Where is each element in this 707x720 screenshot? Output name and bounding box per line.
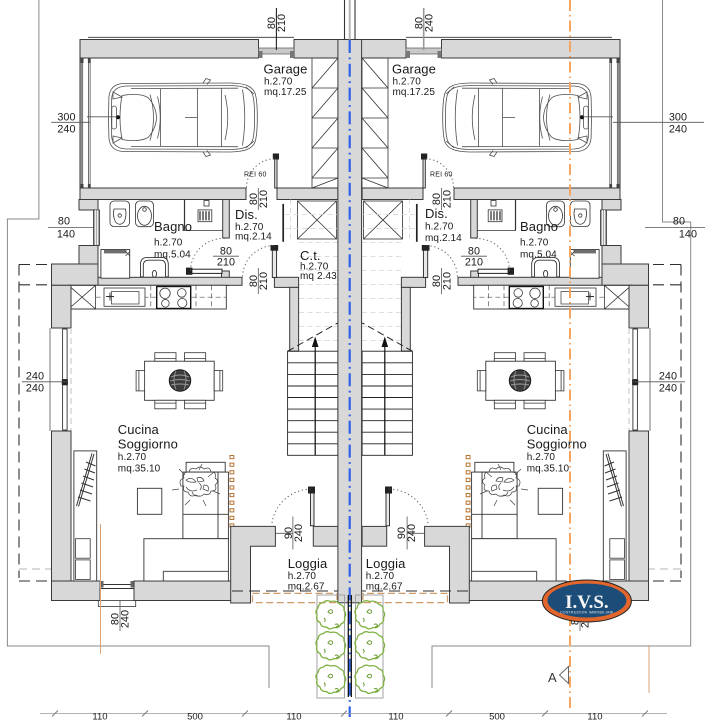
svg-text:240: 240 [659,383,677,395]
svg-text:Loggia: Loggia [288,556,328,571]
svg-text:h.2.70: h.2.70 [425,222,454,233]
svg-text:Cucina: Cucina [118,422,160,437]
svg-text:mq.17.25: mq.17.25 [393,87,436,98]
svg-text:240: 240 [659,371,677,383]
svg-text:h.2.70: h.2.70 [264,77,293,88]
svg-text:h.2.70: h.2.70 [366,571,395,582]
svg-text:A: A [548,670,557,685]
svg-text:210: 210 [217,257,235,269]
svg-text:mq.17.25: mq.17.25 [264,87,307,98]
svg-text:80: 80 [673,216,685,228]
svg-text:mq.2.67: mq.2.67 [288,582,325,593]
svg-text:210: 210 [258,272,270,290]
svg-text:240: 240 [26,371,44,383]
svg-text:240: 240 [57,124,75,136]
svg-text:210: 210 [465,257,483,269]
svg-text:mq.35.10: mq.35.10 [527,464,570,475]
svg-text:h.2.70: h.2.70 [288,571,317,582]
svg-text:500: 500 [489,712,505,720]
svg-text:110: 110 [388,712,403,720]
svg-text:h.2.70: h.2.70 [520,238,549,249]
svg-text:210: 210 [258,190,270,208]
svg-text:210: 210 [441,272,453,290]
svg-text:h.2.70: h.2.70 [393,77,422,88]
svg-text:Soggiorno: Soggiorno [527,437,587,452]
svg-text:h.2.70: h.2.70 [527,452,556,463]
svg-text:mq 2.43: mq 2.43 [300,271,337,282]
svg-text:300: 300 [57,112,75,124]
svg-text:Bagno: Bagno [520,219,558,234]
svg-text:240: 240 [406,524,418,542]
svg-text:Loggia: Loggia [366,556,406,571]
svg-text:mq.5.04: mq.5.04 [520,250,557,261]
svg-text:Cucina: Cucina [527,422,569,437]
svg-text:Garage: Garage [392,62,436,77]
svg-text:mq.35.10: mq.35.10 [118,464,161,475]
svg-text:240: 240 [26,383,44,395]
svg-text:mq.2.14: mq.2.14 [235,232,272,243]
svg-text:Garage: Garage [264,62,308,77]
svg-text:500: 500 [187,712,203,720]
svg-text:Dis.: Dis. [235,207,258,222]
svg-text:140: 140 [679,229,697,241]
svg-text:REI 60: REI 60 [244,172,267,179]
svg-text:110: 110 [92,712,107,720]
svg-text:COSTRUZIONI IMMOBILIARI: COSTRUZIONI IMMOBILIARI [560,611,614,615]
svg-text:h.2.70: h.2.70 [118,452,147,463]
svg-text:210: 210 [276,14,288,32]
svg-text:80: 80 [58,216,70,228]
svg-text:mq.2.14: mq.2.14 [425,233,462,244]
svg-text:mq.5.04: mq.5.04 [154,250,191,261]
svg-text:240: 240 [120,610,132,628]
svg-text:240: 240 [669,124,687,136]
svg-text:240: 240 [424,14,436,32]
svg-text:Soggiorno: Soggiorno [118,437,178,452]
svg-text:REI 60: REI 60 [430,172,453,179]
svg-text:h.2.70: h.2.70 [154,238,183,249]
svg-text:210: 210 [441,190,453,208]
svg-text:300: 300 [669,112,687,124]
svg-text:110: 110 [587,712,602,720]
svg-text:Bagno: Bagno [154,219,192,234]
svg-text:240: 240 [293,524,305,542]
svg-text:mq.2.67: mq.2.67 [366,582,403,593]
svg-text:140: 140 [57,229,75,241]
svg-text:110: 110 [286,712,301,720]
